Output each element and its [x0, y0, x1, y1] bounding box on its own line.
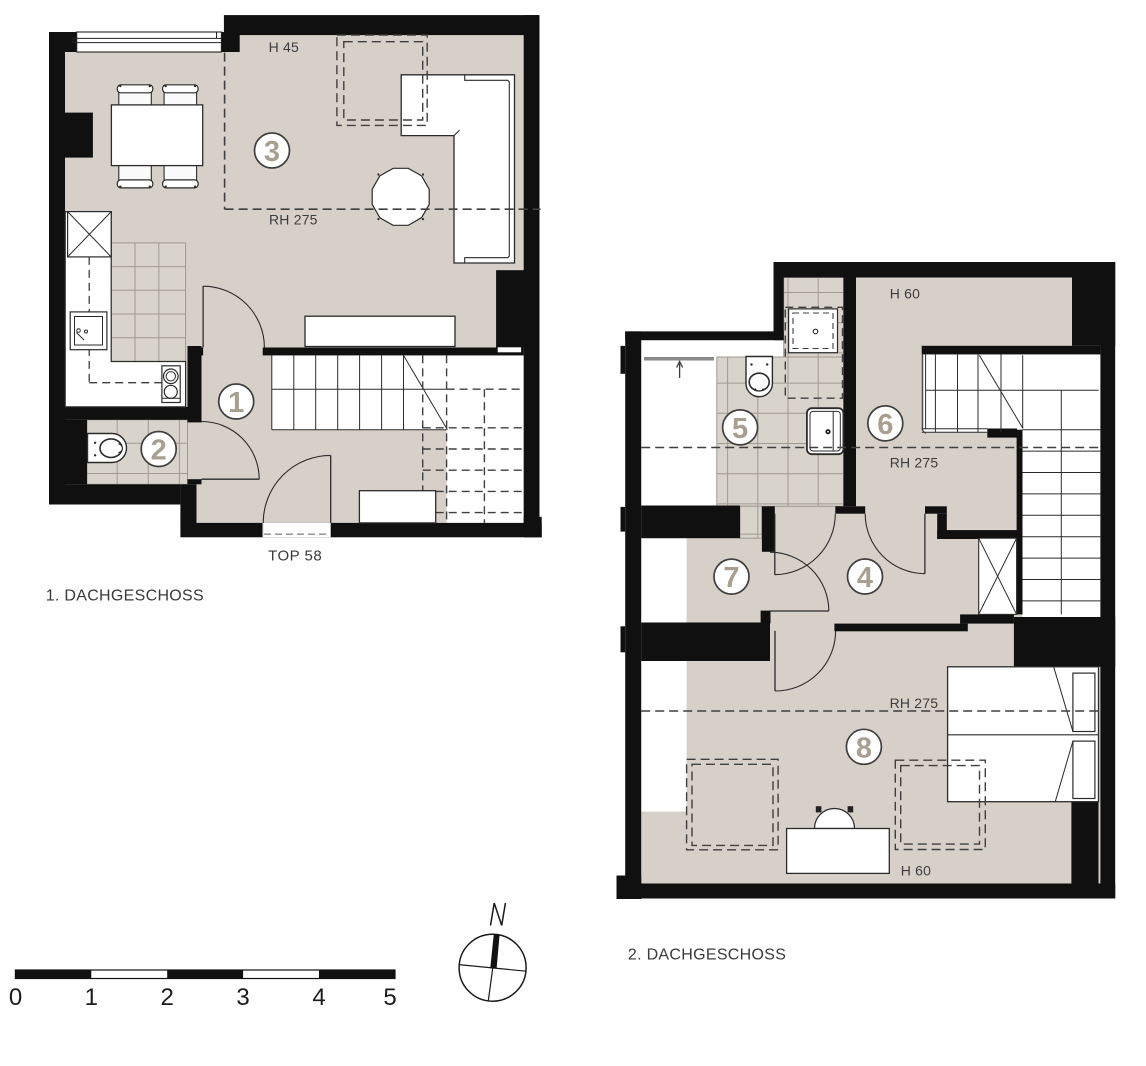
svg-text:1: 1 — [85, 984, 98, 1011]
svg-text:RH 275: RH 275 — [269, 212, 318, 228]
svg-text:2: 2 — [161, 984, 174, 1011]
svg-text:RH 275: RH 275 — [890, 455, 939, 471]
svg-text:2. DACHGESCHOSS: 2. DACHGESCHOSS — [628, 947, 786, 964]
svg-text:5: 5 — [732, 413, 748, 445]
svg-text:1: 1 — [228, 387, 244, 419]
svg-text:2: 2 — [151, 435, 167, 467]
svg-text:H 45: H 45 — [269, 39, 299, 55]
svg-text:8: 8 — [856, 732, 872, 764]
svg-text:7: 7 — [723, 562, 739, 594]
svg-text:6: 6 — [877, 409, 893, 441]
svg-text:H 60: H 60 — [901, 863, 931, 879]
svg-text:H 60: H 60 — [890, 286, 920, 302]
svg-text:1. DACHGESCHOSS: 1. DACHGESCHOSS — [46, 588, 204, 605]
svg-text:0: 0 — [9, 984, 22, 1011]
svg-text:RH 275: RH 275 — [890, 695, 939, 711]
svg-text:3: 3 — [236, 984, 249, 1011]
svg-text:3: 3 — [264, 136, 280, 168]
svg-text:4: 4 — [312, 984, 325, 1011]
svg-text:5: 5 — [383, 984, 396, 1011]
svg-text:TOP 58: TOP 58 — [268, 548, 322, 565]
svg-text:4: 4 — [857, 562, 873, 594]
